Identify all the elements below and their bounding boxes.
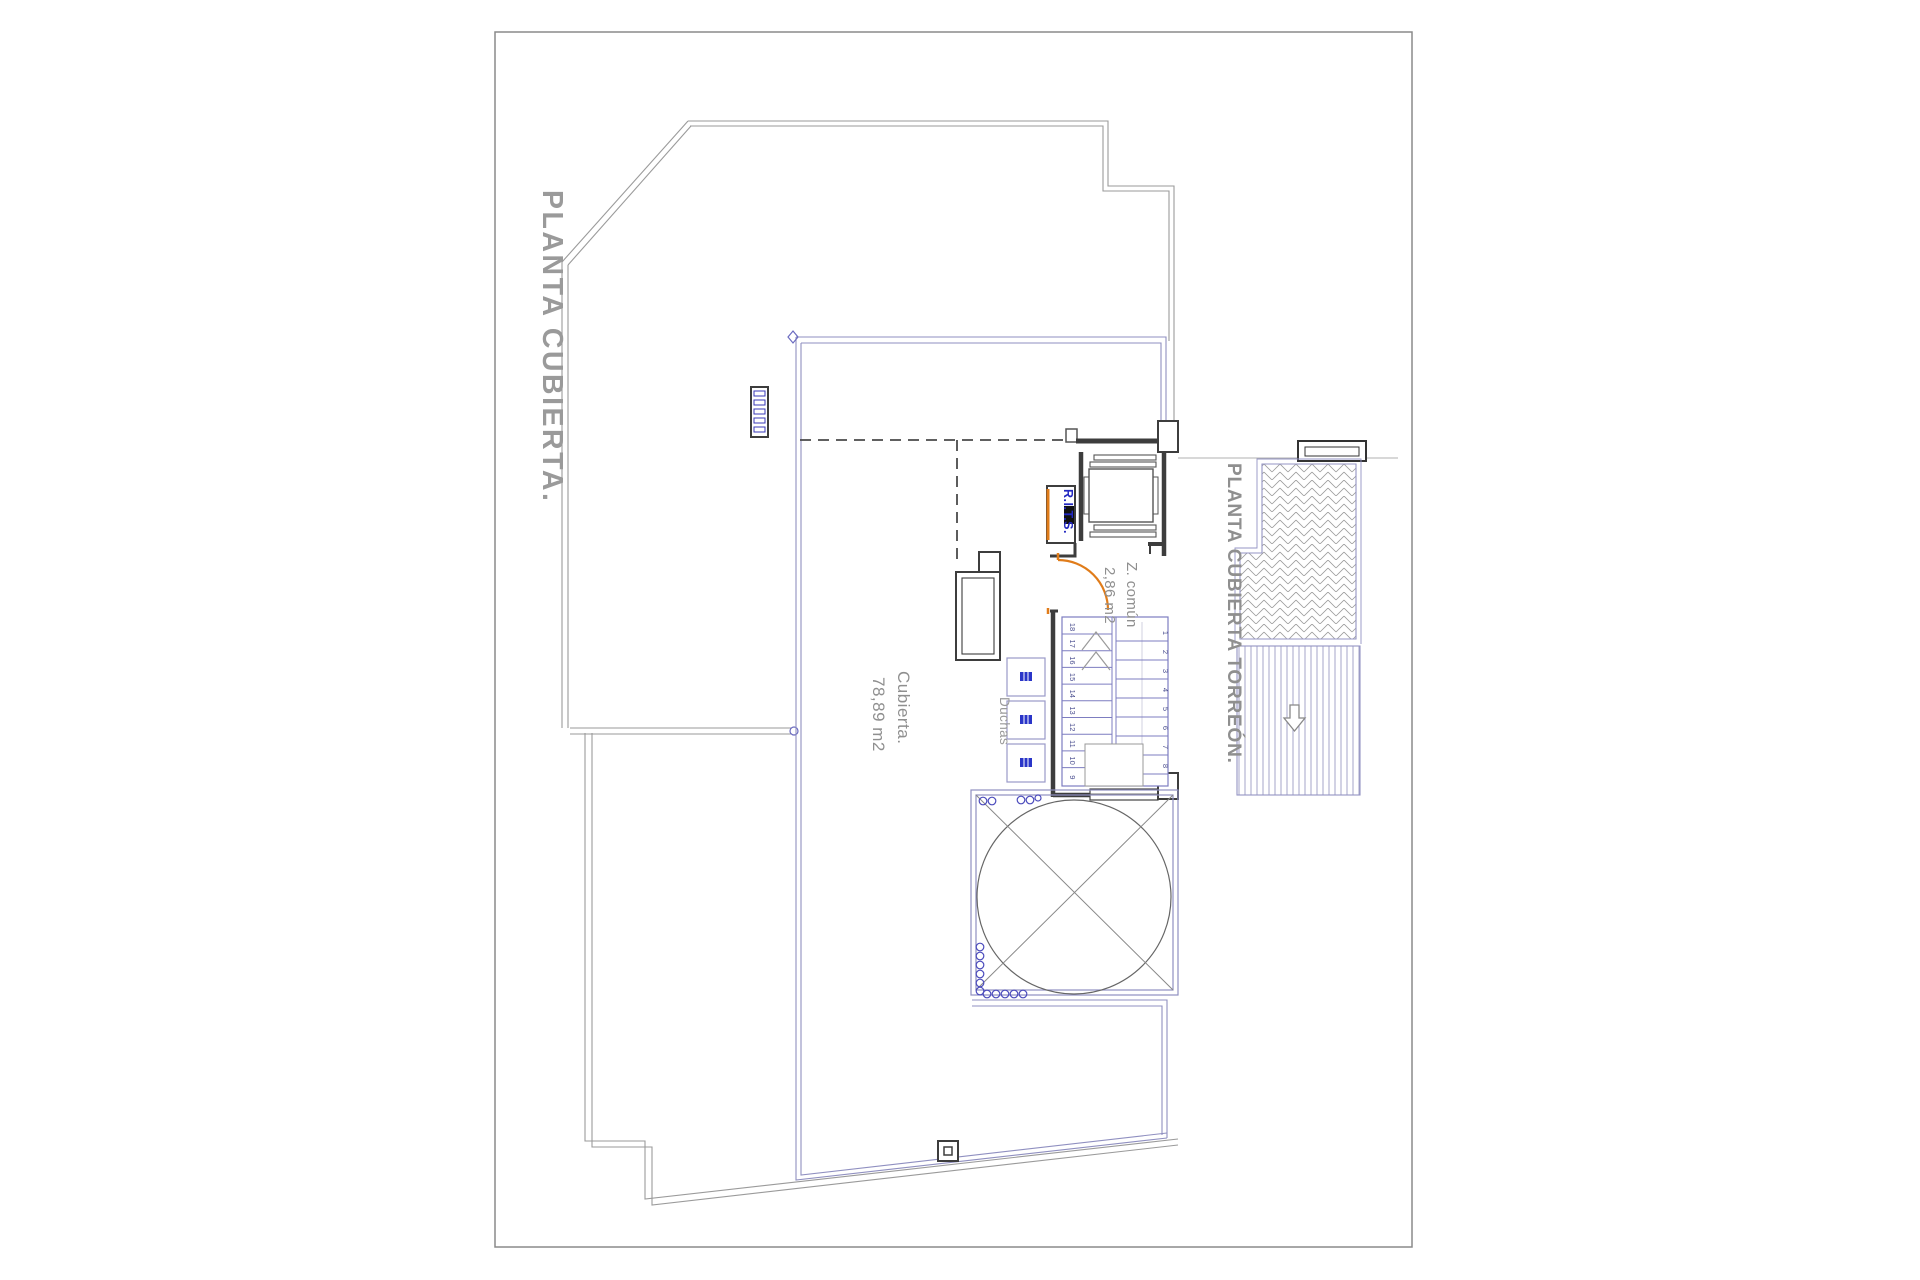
stair-number: 14 [1068, 690, 1077, 698]
drawing-page: 181716151413121110912345678 [0, 0, 1920, 1280]
stair-number: 10 [1068, 756, 1077, 764]
stair-number: 12 [1068, 723, 1077, 731]
stair-number: 16 [1068, 656, 1077, 664]
stair-number: 6 [1161, 726, 1170, 730]
stair-number: 3 [1161, 669, 1170, 673]
stair-number: 11 [1068, 740, 1077, 748]
duchas-label: Duchas [997, 697, 1012, 745]
z-comun-label: Z. común [1123, 562, 1140, 628]
cubierta-area: 78,89 m2 [869, 677, 888, 752]
staircase: 181716151413121110912345678 [1062, 617, 1170, 786]
dashed-line-tab [1066, 429, 1077, 442]
stair-number: 1 [1161, 631, 1170, 635]
vent-grille-icon [751, 387, 768, 437]
page-title: PLANTA CUBIERTA. [536, 190, 568, 503]
floor-plan-svg: 181716151413121110912345678 [0, 0, 1920, 1280]
stair-number: 2 [1161, 650, 1170, 654]
stair-number: 17 [1068, 640, 1077, 648]
stair-number: 8 [1161, 764, 1170, 768]
rits-label: R.I.T.S. [1061, 489, 1075, 534]
stair-number: 5 [1161, 707, 1170, 711]
drain-box [938, 1141, 958, 1161]
stair-number: 7 [1161, 745, 1170, 749]
stair-number: 15 [1068, 673, 1077, 681]
stair-number: 18 [1068, 623, 1077, 631]
lintel-outer [1298, 441, 1366, 461]
stair-number: 4 [1161, 688, 1170, 692]
z-comun-area: 2,86 m2 [1101, 567, 1118, 624]
stair-number: 9 [1068, 775, 1077, 779]
torreon-title: PLANTA CUBIERTA TORREÓN. [1223, 463, 1245, 764]
stair-number: 13 [1068, 706, 1077, 714]
pillar-block-top [1158, 421, 1178, 452]
cubierta-label: Cubierta. [894, 671, 913, 744]
stair-landing [1085, 744, 1143, 786]
